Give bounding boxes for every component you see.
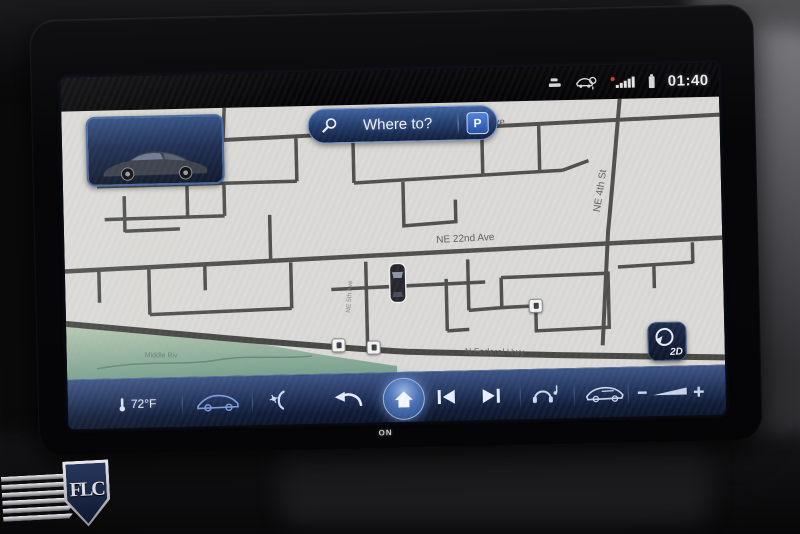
car-interior-photo: 01:40 [0,0,800,534]
volume-plus-icon[interactable] [694,386,705,397]
vehicle-settings-button[interactable] [583,368,626,419]
map-poi-marker[interactable] [529,299,543,313]
sedan-silhouette-icon [97,142,214,185]
next-track-button[interactable] [479,371,502,421]
logo-text: FLC [69,477,104,502]
logo-wing-stripe [2,497,72,506]
logo-wing-stripe [3,513,73,522]
car-front-icon [584,382,626,405]
water-label: Middle Riv [145,352,178,359]
toolbar-divider [627,380,629,406]
signal-bars-icon [610,75,636,89]
vehicle-menu-button[interactable] [193,377,242,428]
search-icon [320,117,337,134]
previous-track-button[interactable] [435,372,458,422]
map-poi-marker[interactable] [367,340,381,354]
infotainment-display-bezel: 01:40 [29,4,763,456]
parking-button[interactable]: P [466,111,488,133]
phone-handset-icon [264,388,295,413]
map-orientation-button[interactable]: 2D [647,321,687,361]
toolbar-divider [519,382,521,408]
back-button[interactable] [329,374,366,425]
temperature-value: 72°F [131,396,157,411]
toolbar-divider [573,381,575,407]
volume-minus-icon[interactable] [638,390,648,394]
thermometer-icon [118,397,127,412]
volume-slider[interactable] [653,385,689,398]
dealer-logo: FLC [0,457,116,534]
network-icon [549,77,562,89]
vehicle-info-card[interactable] [85,114,225,187]
headset-note-icon [530,382,563,407]
logo-wing-stripe [2,489,72,498]
vehicle-position-marker [388,262,408,304]
toolbar-divider [182,390,184,416]
media-audio-button[interactable] [529,369,562,420]
home-icon [394,389,414,408]
skip-forward-icon [480,387,502,405]
phone-button[interactable] [263,375,294,426]
home-button[interactable] [382,377,425,420]
power-indicator-label: ON [378,428,392,437]
navigation-map[interactable]: 23rd Ave NE 4th St NE 22nd Ave N Federal… [61,97,725,380]
logo-wing-stripe [3,505,73,514]
climate-temperature-button[interactable]: 72°F [117,378,157,429]
volume-control[interactable] [637,366,705,418]
compass-mode-label: 2D [670,347,683,358]
back-arrow-icon [330,388,366,411]
clock: 01:40 [668,71,709,89]
battery-icon [649,74,655,88]
infotainment-screen: 01:40 [60,63,726,430]
map-poi-marker[interactable] [331,338,345,352]
toolbar-divider [252,388,254,414]
skip-back-icon [436,388,458,406]
logo-wing-stripe [1,473,71,482]
street-label-federal: N Federal Hwy [465,346,525,357]
logo-wing-stripe [1,481,71,490]
car-location-icon [575,76,597,89]
search-placeholder: Where to? [345,115,449,134]
car-side-icon [194,391,242,414]
logo-shield-inner: FLC [65,462,108,524]
where-to-search[interactable]: Where to? P [307,105,498,144]
pill-divider [457,112,458,134]
